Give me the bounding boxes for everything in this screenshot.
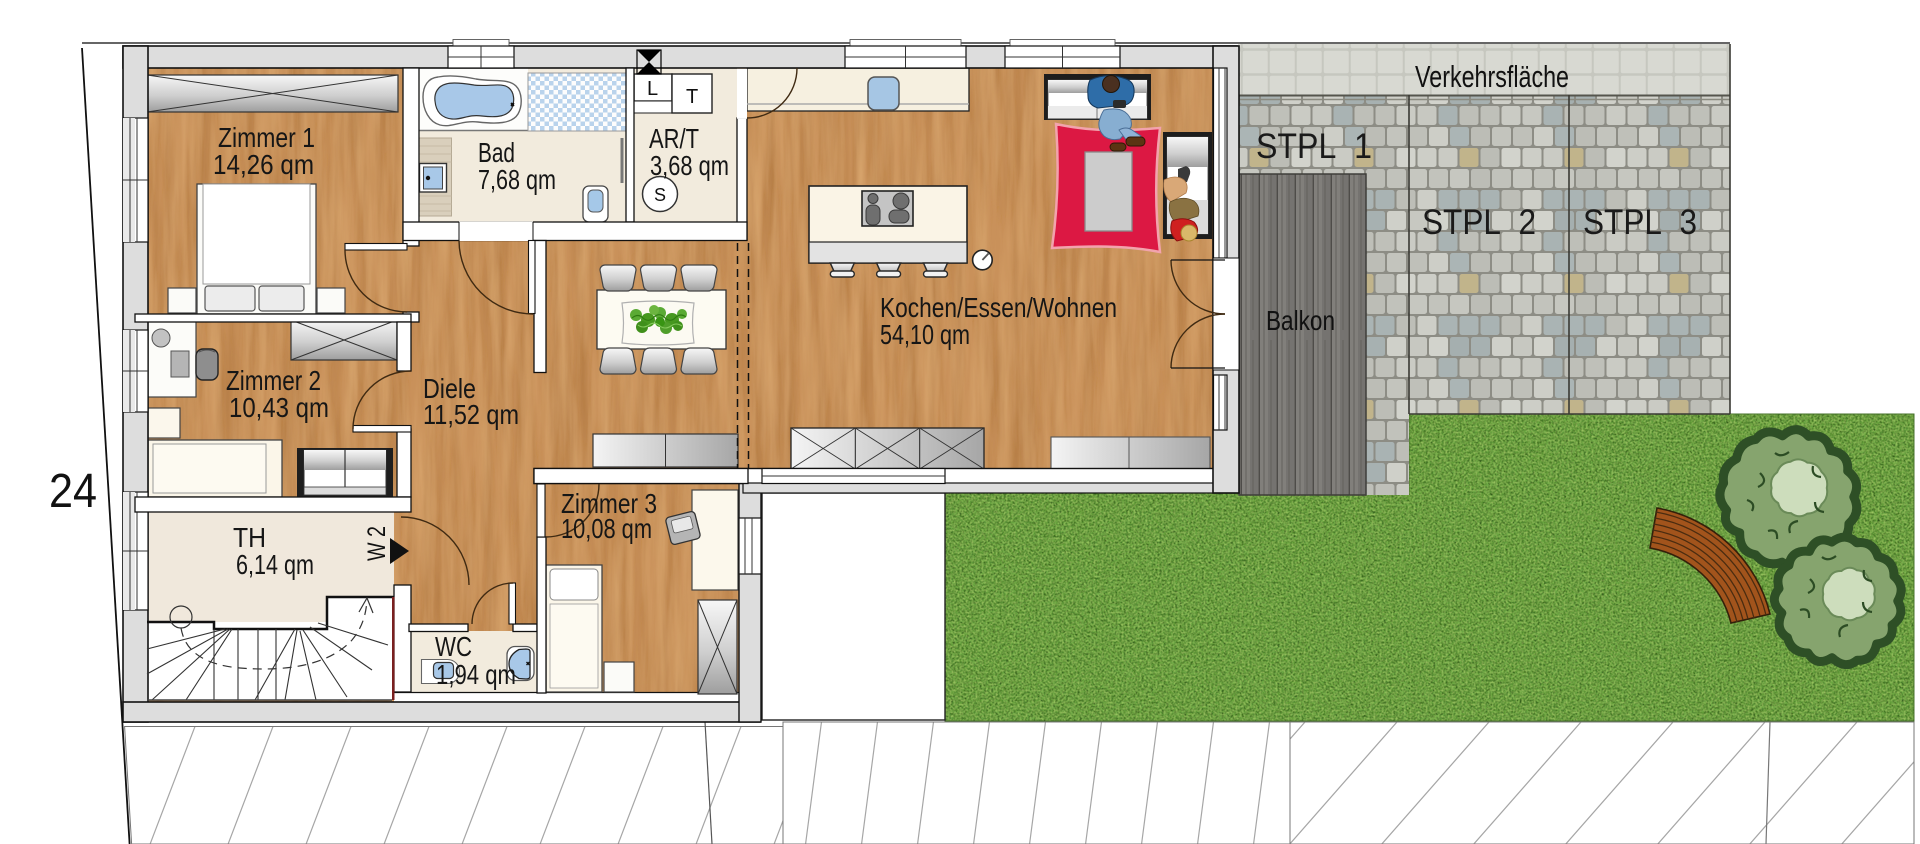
svg-text:10,08 qm: 10,08 qm [561, 513, 652, 544]
svg-text:1,94 qm: 1,94 qm [436, 659, 516, 690]
svg-text:S: S [654, 185, 666, 205]
svg-text:STPL 3: STPL 3 [1583, 203, 1697, 242]
svg-text:Verkehrsfläche: Verkehrsfläche [1415, 59, 1569, 94]
svg-text:3,68 qm: 3,68 qm [650, 150, 729, 181]
svg-text:54,10 qm: 54,10 qm [880, 319, 970, 350]
svg-text:STPL 1: STPL 1 [1256, 127, 1372, 166]
svg-text:10,43 qm: 10,43 qm [229, 392, 329, 423]
svg-text:14,26 qm: 14,26 qm [213, 149, 314, 180]
svg-text:W 2: W 2 [363, 526, 391, 561]
svg-text:T: T [686, 86, 698, 108]
svg-text:11,52 qm: 11,52 qm [423, 399, 519, 430]
svg-text:L: L [647, 78, 658, 100]
svg-text:STPL 2: STPL 2 [1422, 203, 1536, 242]
svg-text:7,68 qm: 7,68 qm [478, 164, 556, 195]
svg-text:WC: WC [435, 631, 472, 662]
svg-text:6,14 qm: 6,14 qm [236, 549, 314, 580]
svg-text:Balkon: Balkon [1266, 305, 1335, 336]
svg-text:24: 24 [49, 465, 97, 518]
